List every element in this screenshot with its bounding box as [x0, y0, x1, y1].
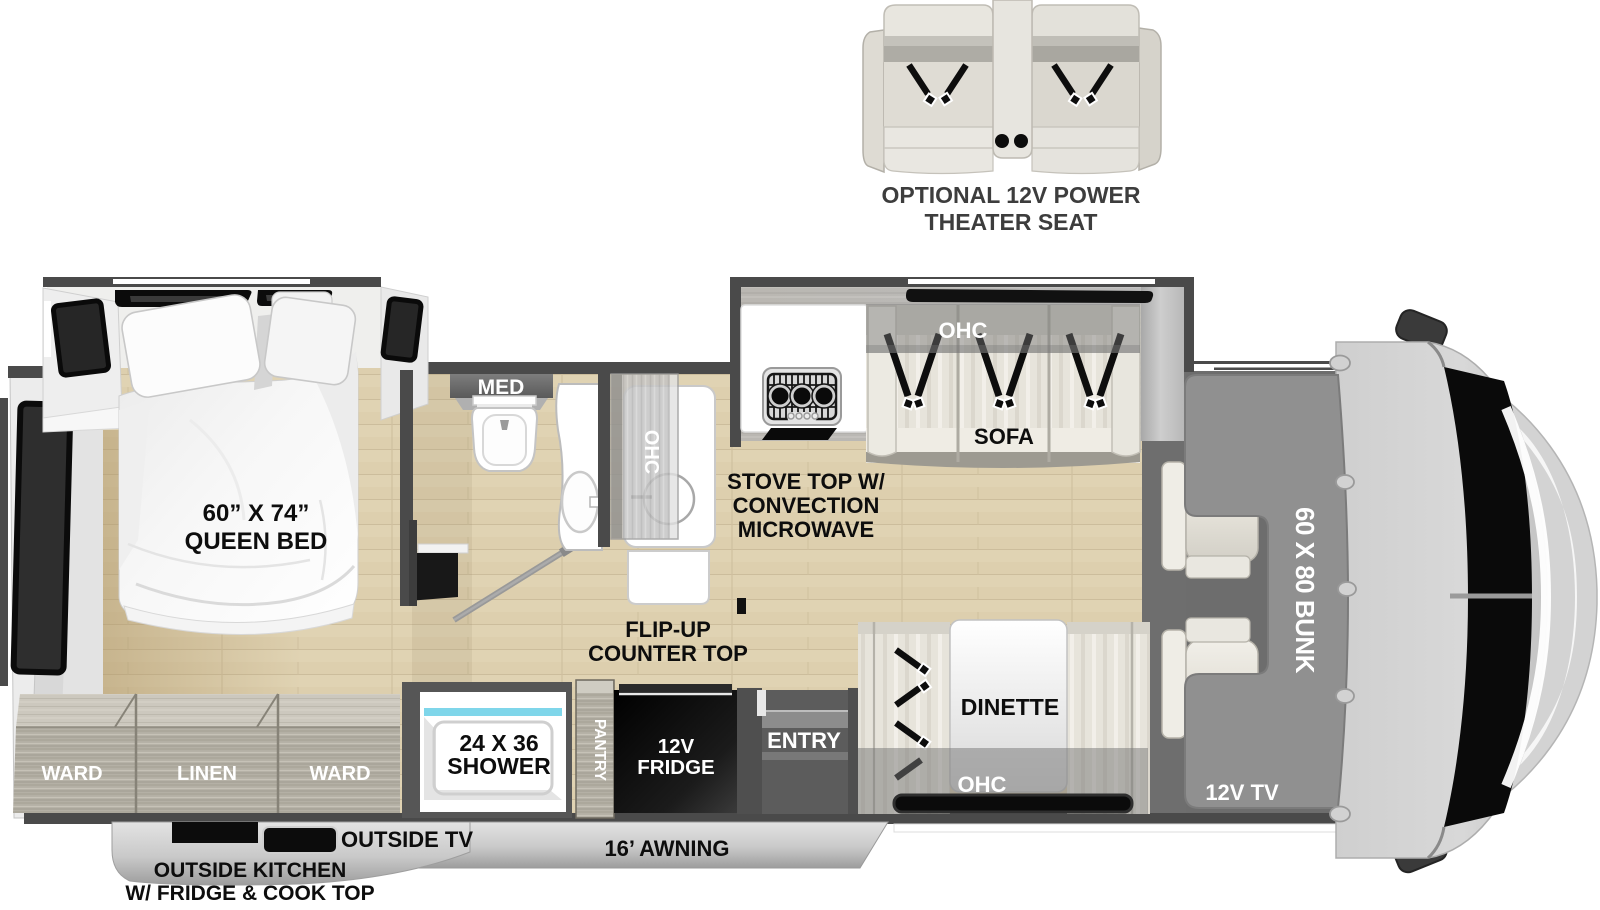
svg-text:LINEN: LINEN — [177, 763, 237, 785]
svg-text:16’ AWNING: 16’ AWNING — [604, 836, 729, 861]
svg-text:OUTSIDE TV: OUTSIDE TV — [341, 827, 473, 852]
svg-text:CONVECTION: CONVECTION — [733, 493, 880, 518]
svg-text:QUEEN BED: QUEEN BED — [185, 528, 328, 555]
svg-text:FLIP-UP: FLIP-UP — [625, 617, 711, 642]
svg-text:60” X 74”: 60” X 74” — [203, 500, 310, 527]
svg-text:MICROWAVE: MICROWAVE — [738, 517, 874, 542]
svg-text:SHOWER: SHOWER — [447, 753, 551, 779]
svg-text:ENTRY: ENTRY — [767, 728, 841, 753]
svg-text:OHC: OHC — [939, 318, 988, 343]
svg-text:WARD: WARD — [309, 763, 370, 785]
svg-text:STOVE TOP W/: STOVE TOP W/ — [727, 469, 885, 494]
svg-text:FRIDGE: FRIDGE — [637, 756, 714, 779]
svg-text:DINETTE: DINETTE — [961, 694, 1059, 720]
svg-text:SOFA: SOFA — [974, 424, 1034, 449]
svg-text:COUNTER TOP: COUNTER TOP — [588, 641, 748, 666]
svg-text:THEATER SEAT: THEATER SEAT — [925, 209, 1098, 235]
svg-text:60 X 80 BUNK: 60 X 80 BUNK — [1290, 507, 1320, 674]
svg-text:OHC: OHC — [640, 430, 662, 474]
svg-text:OUTSIDE KITCHEN: OUTSIDE KITCHEN — [154, 859, 347, 882]
svg-text:12V TV: 12V TV — [1205, 780, 1279, 805]
svg-text:12V: 12V — [658, 735, 695, 758]
svg-text:OPTIONAL 12V POWER: OPTIONAL 12V POWER — [881, 182, 1140, 208]
svg-text:W/ FRIDGE & COOK TOP: W/ FRIDGE & COOK TOP — [125, 882, 374, 905]
svg-text:OHC: OHC — [958, 772, 1007, 797]
svg-text:WARD: WARD — [41, 763, 102, 785]
svg-text:PANTRY: PANTRY — [591, 719, 608, 782]
